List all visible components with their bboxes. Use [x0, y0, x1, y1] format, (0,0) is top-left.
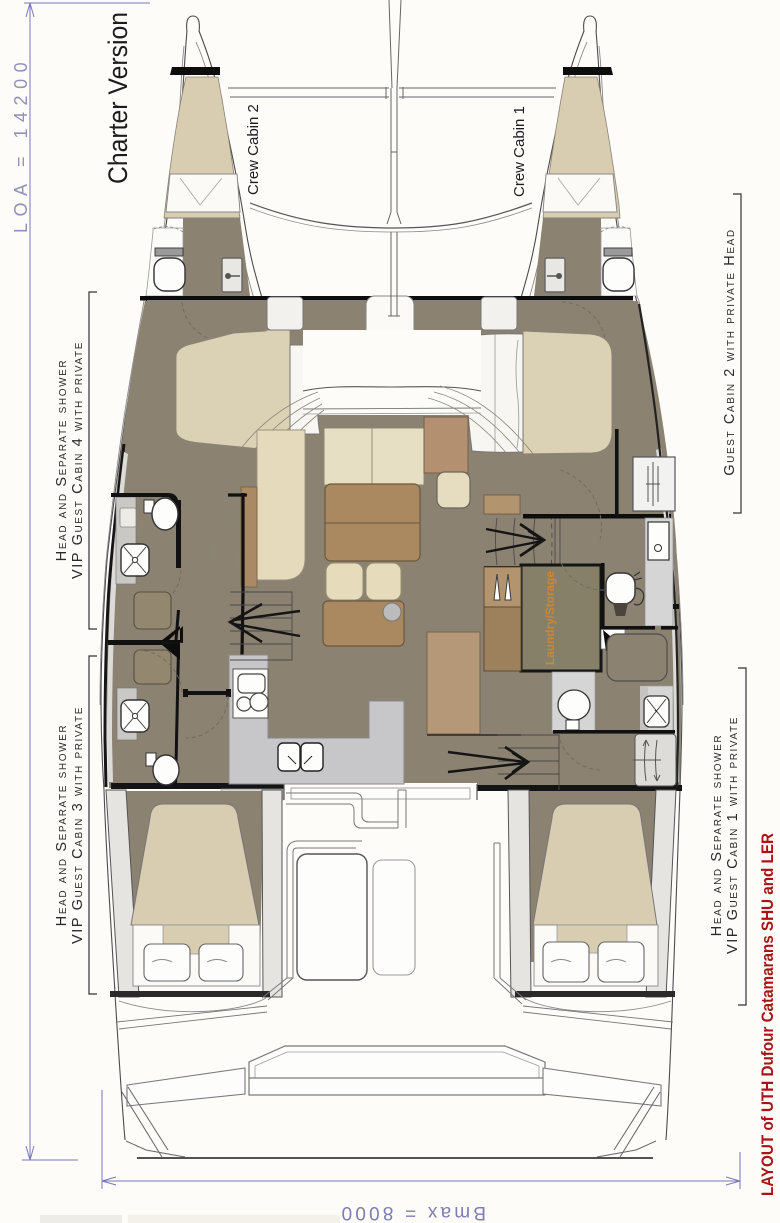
svg-text:Head and Separate shower: Head and Separate shower: [54, 359, 70, 562]
svg-text:Crew Cabin 2: Crew Cabin 2: [245, 104, 262, 195]
svg-text:Head and Separate shower: Head and Separate shower: [54, 724, 70, 927]
svg-text:Laundry/Storage: Laundry/Storage: [545, 571, 557, 665]
svg-text:Crew Cabin 1: Crew Cabin 1: [511, 106, 528, 197]
svg-text:VIP Guest Cabin 1 with private: VIP Guest Cabin 1 with private: [725, 716, 741, 954]
svg-text:LAYOUT of UTH Dufour Catamaran: LAYOUT of UTH Dufour Catamarans SHU and …: [758, 833, 777, 1196]
svg-text:Head and Separate shower: Head and Separate shower: [709, 734, 725, 937]
svg-text:VIP Guest Cabin 4 with private: VIP Guest Cabin 4 with private: [70, 341, 86, 579]
svg-text:LOA = 14200: LOA = 14200: [11, 56, 31, 233]
svg-text:Guest Cabin 2 with private He: Guest Cabin 2 with private Head: [722, 228, 738, 475]
svg-text:Bmax = 8000: Bmax = 8000: [338, 1202, 486, 1223]
svg-text:Charter Version: Charter Version: [103, 12, 133, 184]
svg-text:VIP Guest Cabin 3 with private: VIP Guest Cabin 3 with private: [70, 706, 86, 944]
